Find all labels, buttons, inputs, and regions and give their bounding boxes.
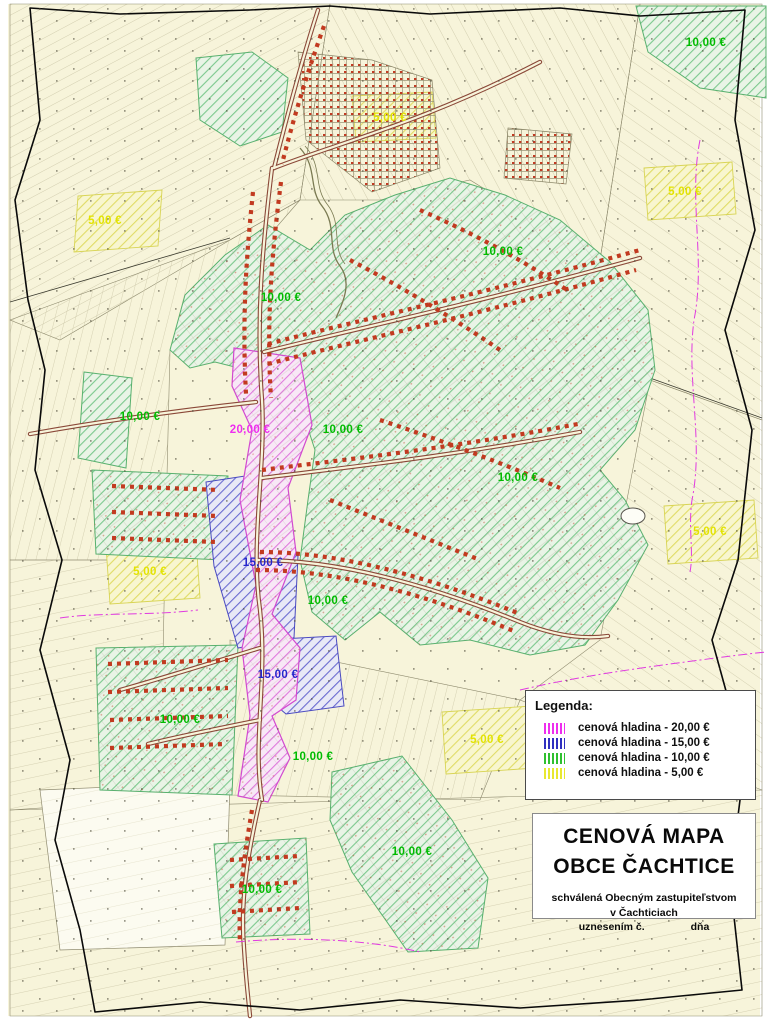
price-label: 5,00 € [133, 566, 167, 578]
legend-title: Legenda: [535, 698, 746, 713]
price-label: 15,00 € [258, 669, 298, 681]
map-title-line2: OBCE ČACHTICE [533, 852, 755, 882]
legend-swatch-icon [544, 738, 565, 749]
price-map-sheet: 10,00 €5,00 €5,00 €5,00 €10,00 €10,00 €1… [0, 0, 768, 1024]
price-label: 10,00 € [160, 714, 200, 726]
legend-item-label: cenová hladina - 15,00 € [578, 737, 710, 749]
price-label: 10,00 € [308, 595, 348, 607]
approval-line1: schválená Obecným zastupiteľstvom [533, 891, 755, 906]
approval-line3: uznesením č. dňa [533, 920, 755, 935]
approval-resolution-label: uznesením č. [579, 920, 645, 935]
price-label: 10,00 € [483, 246, 523, 258]
approval-line2: v Čachticiach [533, 906, 755, 921]
price-label: 10,00 € [293, 751, 333, 763]
price-label: 10,00 € [261, 292, 301, 304]
legend-item: cenová hladina - 10,00 € [544, 752, 746, 764]
legend-box: Legenda: cenová hladina - 20,00 €cenová … [525, 690, 756, 800]
price-label: 5,00 € [668, 186, 702, 198]
map-title-line1: CENOVÁ MAPA [533, 822, 755, 852]
price-label: 20,00 € [230, 424, 270, 436]
price-label: 15,00 € [243, 557, 283, 569]
price-label: 10,00 € [392, 846, 432, 858]
legend-items: cenová hladina - 20,00 €cenová hladina -… [535, 722, 746, 779]
legend-item: cenová hladina - 20,00 € [544, 722, 746, 734]
legend-swatch-icon [544, 753, 565, 764]
approval-date-label: dňa [691, 920, 710, 935]
legend-item-label: cenová hladina - 20,00 € [578, 722, 710, 734]
price-label: 5,00 € [470, 734, 504, 746]
price-label: 10,00 € [498, 472, 538, 484]
price-label: 10,00 € [686, 37, 726, 49]
legend-item-label: cenová hladina - 5,00 € [578, 767, 703, 779]
price-label: 10,00 € [323, 424, 363, 436]
legend-swatch-icon [544, 768, 565, 779]
legend-item-label: cenová hladina - 10,00 € [578, 752, 710, 764]
price-label: 10,00 € [242, 884, 282, 896]
price-label: 5,00 € [693, 526, 727, 538]
price-label: 5,00 € [373, 112, 407, 124]
title-box: CENOVÁ MAPA OBCE ČACHTICE schválená Obec… [532, 813, 756, 919]
legend-item: cenová hladina - 15,00 € [544, 737, 746, 749]
price-label: 5,00 € [88, 215, 122, 227]
legend-swatch-icon [544, 723, 565, 734]
legend-item: cenová hladina - 5,00 € [544, 767, 746, 779]
price-label: 10,00 € [120, 411, 160, 423]
